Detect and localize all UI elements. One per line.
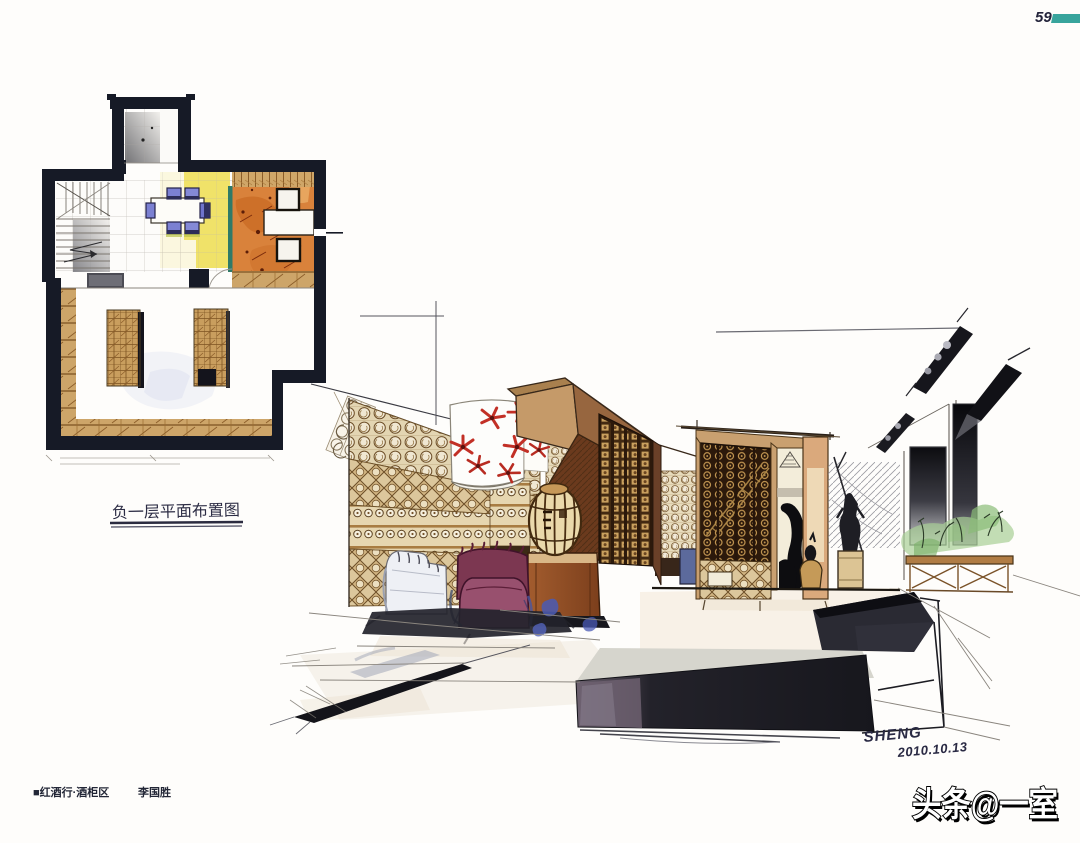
svg-text:■红酒行·酒柜区: ■红酒行·酒柜区 — [33, 785, 109, 799]
svg-text:头条@一室: 头条@一室 — [912, 785, 1058, 824]
svg-text:李国胜: 李国胜 — [137, 785, 171, 799]
svg-text:59: 59 — [1035, 9, 1052, 26]
svg-text:负一层平面布置图: 负一层平面布置图 — [112, 501, 240, 522]
